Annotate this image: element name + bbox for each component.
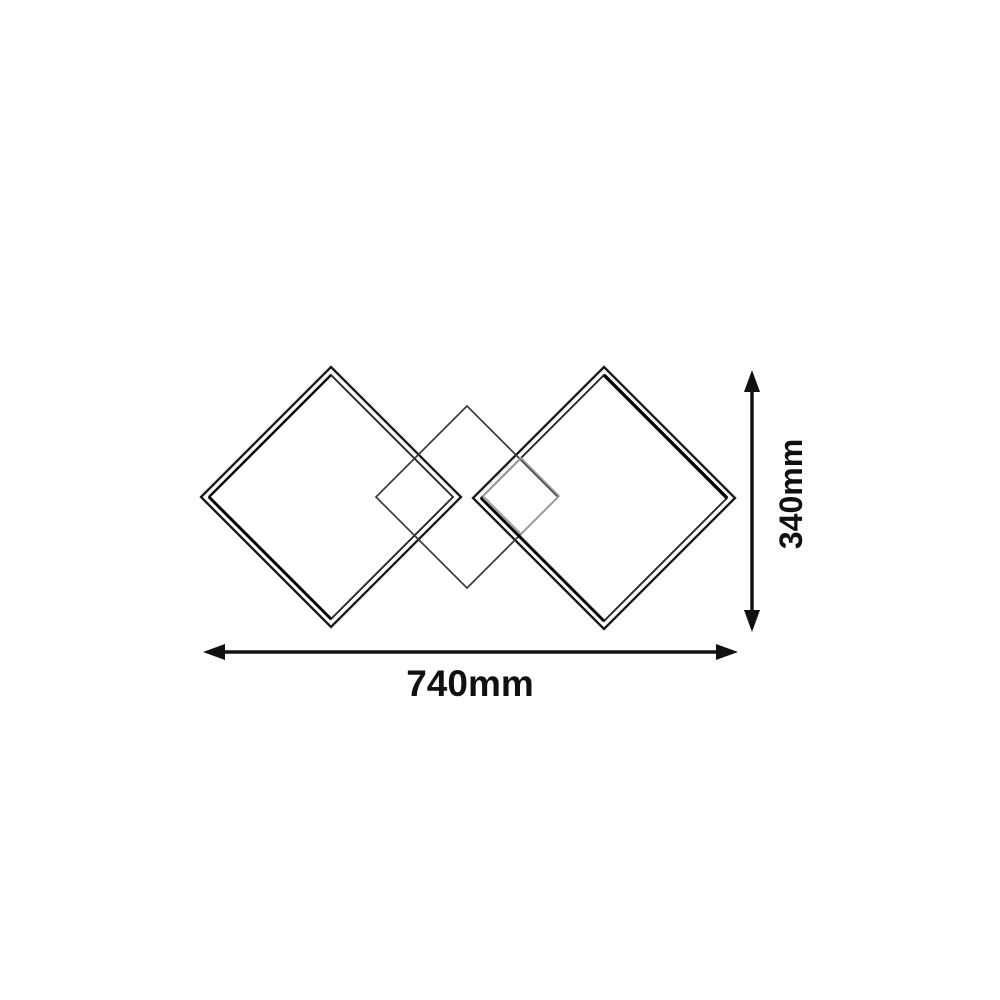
right-frame-outer <box>473 367 735 629</box>
right-frame-inner <box>481 375 727 621</box>
dimension-drawing: 740mm 340mm <box>0 0 1000 1000</box>
left-frame-shade-upper-left <box>209 375 331 497</box>
center-diamond <box>376 406 558 588</box>
left-frame-shade-lower-left <box>209 497 331 619</box>
height-dimension-arrow-bottom-icon <box>744 610 760 632</box>
width-dimension-label: 740mm <box>406 663 534 704</box>
fixture-shapes-layer <box>201 367 735 629</box>
small-diamond <box>483 458 559 534</box>
right-frame-shade-lower-left <box>481 498 604 621</box>
left-frame-outer <box>201 367 461 627</box>
dimension-layer <box>203 370 760 660</box>
right-frame-shade-upper-right <box>604 375 727 498</box>
diagram-canvas: 740mm 340mm <box>0 0 1000 1000</box>
left-frame-inner <box>209 375 453 619</box>
width-dimension-arrow-right-icon <box>716 644 738 660</box>
width-dimension-arrow-left-icon <box>203 644 225 660</box>
height-dimension-arrow-top-icon <box>744 370 760 392</box>
height-dimension-label: 340mm <box>773 439 809 549</box>
